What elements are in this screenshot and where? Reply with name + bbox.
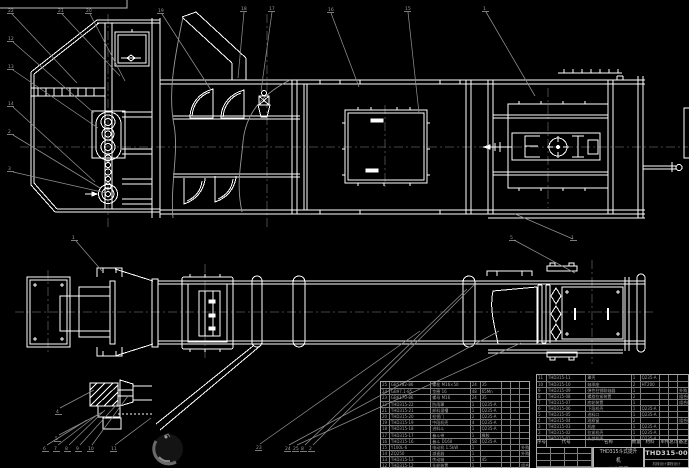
bom-cell: Q235-A (641, 412, 661, 417)
bom-cell (660, 375, 669, 381)
bom-row: 16THD315-16畚斗 D16058Q235-A (381, 438, 529, 444)
cad-viewport: 2221201918171615112131423151678910115423… (0, 0, 689, 468)
bom-cell: 2 (632, 394, 641, 399)
bom-cell: 轴承座 (586, 382, 631, 387)
bom-cell: 总计 (669, 440, 678, 447)
bom-cell (511, 439, 520, 444)
bom-cell (660, 424, 669, 429)
bom-cell: 16 (381, 439, 390, 444)
bom-cell: 3 (537, 424, 547, 429)
bom-cell: 备注 (678, 440, 688, 447)
bom-table-right: 11THD315-11罩壳1Q235-A10THD315-10轴承座2HT200… (536, 374, 689, 440)
bom-cell (678, 430, 688, 435)
bom-cell (520, 457, 529, 462)
bom-cell: 电动机 1.5kW (431, 445, 470, 450)
bom-cell: THD315-04 (547, 418, 586, 423)
bom-cell (520, 402, 529, 407)
bom-cell (502, 439, 511, 444)
bom-cell: 4 (471, 420, 481, 425)
callout-label: 10 (88, 446, 94, 452)
bom-cell: THD315-07 (547, 400, 586, 405)
revision-grid (536, 447, 593, 468)
bom-row: 6THD315-06下段机壳1Q235-A (537, 405, 688, 411)
bom-cell (669, 412, 678, 417)
bom-cell: THD315-20 (390, 414, 431, 419)
drawing-number-cell: THD315-00 机械设计课程设计 (644, 447, 689, 468)
bom-cell: 螺母 M16 (431, 395, 470, 400)
bom-cell (502, 395, 511, 400)
bom-cell: 65Mn (481, 389, 503, 394)
bom-cell: 12 (381, 463, 390, 468)
bom-cell (669, 375, 678, 381)
callout-label: 21 (58, 8, 64, 14)
bom-cell: 2 (632, 382, 641, 387)
bom-cell: 21 (381, 408, 390, 413)
bom-cell: 17 (381, 433, 390, 438)
bom-cell: THD315-06 (547, 406, 586, 411)
bom-cell: 代号 (547, 440, 586, 447)
callout-label: 1 (571, 235, 574, 241)
bom-cell: 名称 (586, 440, 631, 447)
bom-cell: 序号 (537, 440, 547, 447)
bom-cell (660, 412, 669, 417)
bom-cell: 1 (471, 402, 481, 407)
bom-cell (520, 408, 529, 413)
callout-label: 3 (8, 166, 11, 172)
bom-cell: 传动轴 (431, 457, 470, 462)
bom-cell: 底轮装置 (586, 400, 631, 405)
bom-cell (502, 402, 511, 407)
drawing-title-cell: THD315斗式提升机 总装配图 (593, 447, 644, 468)
bom-cell: 22 (381, 402, 390, 407)
bom-cell: 8 (537, 394, 547, 399)
bom-cell: 拉紧机壳 (586, 430, 631, 435)
bom-cell (481, 445, 503, 450)
bom-cell: 1 (632, 388, 641, 393)
bom-cell: 23 (381, 395, 390, 400)
bom-cell (511, 402, 520, 407)
bom-cell (641, 400, 661, 405)
bom-cell (669, 418, 678, 423)
bom-cell: 组合件 (678, 418, 688, 423)
drawing-number: THD315-00 (645, 448, 688, 459)
bom-cell: THD315-09 (547, 388, 586, 393)
bom-cell: 35 (481, 395, 503, 400)
bom-cell: Q235-A (641, 406, 661, 411)
callout-label: 17 (269, 6, 275, 12)
bom-cell (520, 382, 529, 388)
bom-row: 13THD315-13传动轴145 (381, 456, 529, 462)
bom-cell: 10 (537, 382, 547, 387)
bom-row: 11THD315-11罩壳1Q235-A (537, 375, 688, 381)
bom-row: 25GB5782-86螺栓 M16×502435 (381, 382, 529, 388)
bom-cell: 6 (537, 406, 547, 411)
callout-label: 6 (43, 446, 46, 452)
callout-label: 23 (256, 445, 262, 451)
bom-cell: 卸料溜槽 (431, 408, 470, 413)
bom-cell (669, 430, 678, 435)
bom-cell (669, 394, 678, 399)
bom-cell: 25 (381, 382, 390, 388)
bom-cell (669, 424, 678, 429)
bom-cell (511, 426, 520, 431)
bom-row: 8THD315-08螺旋拉紧装置2组合件 (537, 393, 688, 399)
bom-cell (502, 414, 511, 419)
bom-cell (520, 389, 529, 394)
bom-cell: 13 (381, 457, 390, 462)
bom-cell: Q235-A (481, 414, 503, 419)
bom-cell: THD315-10 (547, 382, 586, 387)
bom-cell (678, 382, 688, 387)
bom-cell: 1 (471, 445, 481, 450)
bom-cell (520, 395, 529, 400)
bom-cell: 1 (632, 375, 641, 381)
bom-cell (511, 395, 520, 400)
bom-row: 14ZQ250减速器1外购 (381, 450, 529, 456)
bom-cell (641, 394, 661, 399)
bom-row: 9THD315-09弹性柱销联轴器1外购 (537, 387, 688, 393)
bom-cell: GB97.1-85 (390, 389, 431, 394)
bom-cell (678, 406, 688, 411)
bom-cell: 1 (632, 406, 641, 411)
bom-cell: 1 (471, 426, 481, 431)
bom-row: 10THD315-10轴承座2HT200 (537, 381, 688, 387)
bom-cell (502, 389, 511, 394)
bom-cell: 组合件 (678, 400, 688, 405)
bom-row: 2THD315-02拉紧机壳1Q235-A (537, 429, 688, 435)
callout-label: 9 (76, 446, 79, 452)
callout-label: 13 (8, 64, 14, 70)
bom-cell: 1 (471, 451, 481, 456)
callout-label: 15 (405, 6, 411, 12)
bom-cell (511, 414, 520, 419)
bom-cell (660, 394, 669, 399)
bom-cell: 9 (537, 388, 547, 393)
bom-cell: THD315-17 (390, 433, 431, 438)
bom-row: 24GB97.1-85垫圈 164865Mn (381, 388, 529, 394)
bom-cell: THD315-11 (547, 375, 586, 381)
bom-cell (502, 408, 511, 413)
bom-cell: 中段机壳 (431, 420, 470, 425)
bom-cell: THD315-02 (547, 430, 586, 435)
callout-label: 20 (86, 8, 92, 14)
bom-cell: 1 (471, 433, 481, 438)
bom-cell (660, 430, 669, 435)
bom-cell: 进料斗 (431, 426, 470, 431)
bom-cell: 18 (381, 426, 390, 431)
bom-cell (502, 457, 511, 462)
callout-label: 16 (328, 7, 334, 13)
bom-cell (669, 406, 678, 411)
bom-cell: 外购 (678, 388, 688, 393)
bom-cell: 下段机壳 (586, 406, 631, 411)
bom-cell (520, 439, 529, 444)
bom-cell: Q235-A (481, 408, 503, 413)
bom-cell (678, 412, 688, 417)
bom-cell: Q235-A (481, 420, 503, 425)
bom-cell (641, 418, 661, 423)
bom-row: 5THD315-05进料口1Q235-A (537, 411, 688, 417)
bom-cell (481, 451, 503, 456)
bom-cell: 橡胶 (481, 433, 503, 438)
callout-label: 25 (293, 446, 299, 452)
bom-cell: 1 (632, 400, 641, 405)
bom-cell: 24 (471, 382, 481, 388)
bom-cell: THD315-13 (390, 457, 431, 462)
bom-cell: THD315-12 (390, 463, 431, 468)
bom-row: 12THD315-12头轮装置1组合件 (381, 462, 529, 468)
bom-cell: 1 (471, 408, 481, 413)
bom-cell: 数量 (632, 440, 641, 447)
callout-label: 2 (8, 129, 11, 135)
bom-cell: 4 (537, 418, 547, 423)
bom-row: 22THD315-22防雨罩1Q235-A (381, 401, 529, 407)
bom-cell: 机座 (586, 424, 631, 429)
bom-cell (511, 389, 520, 394)
bom-cell (502, 451, 511, 456)
bom-row: 17THD315-17畚斗带1橡胶 (381, 432, 529, 438)
bom-cell: GB5782-86 (390, 382, 431, 388)
bom-cell: 1 (632, 430, 641, 435)
bom-cell (669, 382, 678, 387)
bom-cell: 畚斗带 (431, 433, 470, 438)
frame-corner (0, 0, 127, 8)
bom-row: 序号代号名称数量材料单件总计备注 (537, 440, 688, 447)
bom-cell (511, 382, 520, 388)
bom-cell (660, 382, 669, 387)
callout-label: 8 (301, 446, 304, 452)
bom-row: 15Y100L-6电动机 1.5kW1外购 (381, 444, 529, 450)
bom-cell: 19 (381, 420, 390, 425)
bom-cell (641, 388, 661, 393)
bom-cell: THD315-22 (390, 402, 431, 407)
bom-cell: THD315-18 (390, 426, 431, 431)
organization-line: 机械设计课程设计 (645, 459, 688, 468)
bom-cell: 减速器 (431, 451, 470, 456)
bom-cell (511, 463, 520, 468)
bom-cell (520, 414, 529, 419)
bom-cell: Q235-A (641, 430, 661, 435)
bom-cell (678, 424, 688, 429)
bom-cell (520, 420, 529, 425)
callout-label: 18 (241, 6, 247, 12)
bom-cell: 进料口 (586, 412, 631, 417)
bom-cell: THD315-08 (547, 394, 586, 399)
bom-cell: 组合件 (520, 463, 529, 468)
callout-label: 24 (285, 446, 291, 452)
callout-label: 5 (510, 235, 513, 241)
front-view-linework (31, 12, 689, 218)
bom-cell: Q235-A (481, 402, 503, 407)
bom-cell: 外购 (520, 445, 529, 450)
bom-cell (660, 388, 669, 393)
bom-cell: 防雨罩 (431, 402, 470, 407)
bom-cell: 11 (537, 375, 547, 381)
bom-cell: 螺旋拉紧装置 (586, 394, 631, 399)
bom-cell (669, 400, 678, 405)
bom-cell: 垫圈 16 (431, 389, 470, 394)
callout-label: 1 (72, 235, 75, 241)
bom-cell: GB6170-86 (390, 395, 431, 400)
bom-cell: 1 (471, 457, 481, 462)
bom-cell: Q235-A (481, 426, 503, 431)
bom-cell: 20 (381, 414, 390, 419)
callout-label: 7 (54, 446, 57, 452)
bom-cell: 1 (632, 412, 641, 417)
bom-cell: 1 (632, 424, 641, 429)
bom-cell: THD315-21 (390, 408, 431, 413)
bom-cell (511, 457, 520, 462)
bom-cell (481, 463, 503, 468)
bom-cell: THD315-16 (390, 439, 431, 444)
bom-row: 20THD315-20检视门2Q235-A (381, 413, 529, 419)
bom-cell: 24 (471, 395, 481, 400)
bom-cell (520, 433, 529, 438)
callout-label: 11 (111, 446, 117, 452)
bom-cell: 畚斗 D160 (431, 439, 470, 444)
bom-cell (502, 420, 511, 425)
bom-row: 7THD315-07底轮装置1组合件 (537, 399, 688, 405)
bom-row: 3THD315-03机座1Q235-A (537, 423, 688, 429)
bom-cell: ZQ250 (390, 451, 431, 456)
bom-cell (511, 408, 520, 413)
bom-cell: 2 (471, 414, 481, 419)
bom-cell: 观察窗 (586, 418, 631, 423)
bom-cell: 14 (381, 451, 390, 456)
bom-row: 4THD315-04观察窗2组合件 (537, 417, 688, 423)
callout-label: 8 (65, 446, 68, 452)
bom-cell: THD315-03 (547, 424, 586, 429)
bom-cell: 检视门 (431, 414, 470, 419)
bom-cell (502, 426, 511, 431)
bom-cell: 材料 (641, 440, 661, 447)
bom-cell (511, 451, 520, 456)
bom-cell: 单件 (660, 440, 669, 447)
bom-cell (660, 418, 669, 423)
bom-cell: 2 (632, 418, 641, 423)
bom-cell (669, 388, 678, 393)
callout-label: 5 (55, 436, 58, 442)
bom-cell: 弹性柱销联轴器 (586, 388, 631, 393)
bom-cell: 1 (471, 463, 481, 468)
callout-label: 22 (8, 8, 14, 14)
bom-row: 21THD315-21卸料溜槽1Q235-A (381, 407, 529, 413)
bom-cell: 7 (537, 400, 547, 405)
callout-label: 12 (8, 36, 14, 42)
callout-label: 1 (483, 6, 486, 12)
bom-cell (502, 433, 511, 438)
bom-row: 18THD315-18进料斗1Q235-A (381, 425, 529, 431)
bom-cell: Q235-A (641, 375, 661, 381)
bom-cell (502, 445, 511, 450)
bom-cell (511, 433, 520, 438)
bom-cell: 头轮装置 (431, 463, 470, 468)
bom-cell (511, 420, 520, 425)
bom-cell: HT200 (641, 382, 661, 387)
bom-cell (520, 426, 529, 431)
bom-cell: THD315-19 (390, 420, 431, 425)
bom-cell: 58 (471, 439, 481, 444)
callout-label: 19 (158, 8, 164, 14)
drawing-name: THD315斗式提升机 (598, 448, 640, 466)
bom-cell: 2 (537, 430, 547, 435)
bom-row: 19THD315-19中段机壳4Q235-A (381, 419, 529, 425)
bom-cell: 35 (481, 382, 503, 388)
bom-cell: 5 (537, 412, 547, 417)
bom-row: 23GB6170-86螺母 M162435 (381, 394, 529, 400)
bom-cell: 外购 (520, 451, 529, 456)
bom-cell (502, 463, 511, 468)
callout-label: 2 (309, 446, 312, 452)
bom-cell: 48 (471, 389, 481, 394)
bom-cell: THD315-05 (547, 412, 586, 417)
bom-table-left: 25GB5782-86螺栓 M16×50243524GB97.1-85垫圈 16… (380, 381, 530, 468)
bom-cell (660, 400, 669, 405)
bom-cell: 罩壳 (586, 375, 631, 381)
callout-label: 4 (56, 409, 59, 415)
bom-cell: 45 (481, 457, 503, 462)
bom-cell (511, 445, 520, 450)
bom-cell (502, 382, 511, 388)
bom-cell (678, 375, 688, 381)
callout-label: 14 (8, 101, 14, 107)
bom-cell: 组合件 (678, 394, 688, 399)
bom-cell: Q235-A (641, 424, 661, 429)
bom-cell: Q235-A (481, 439, 503, 444)
ink-blot (153, 434, 183, 464)
bom-cell: 15 (381, 445, 390, 450)
bom-cell (660, 406, 669, 411)
bom-cell: 螺栓 M16×50 (431, 382, 470, 388)
bom-cell: Y100L-6 (390, 445, 431, 450)
bom-cell: 24 (381, 389, 390, 394)
